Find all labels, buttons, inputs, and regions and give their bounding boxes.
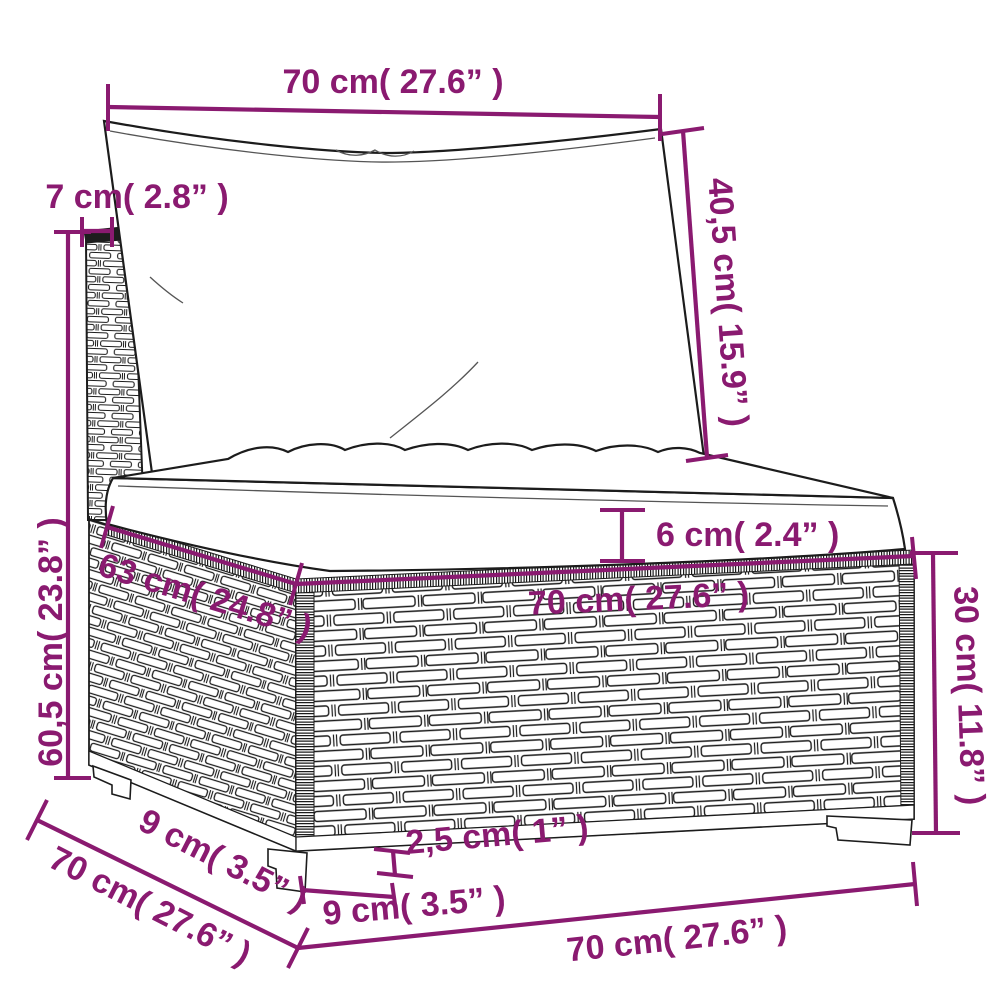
dim-base-height: 30 cm( 11.8” ) xyxy=(910,553,992,833)
dim-back-width-label: 70 cm( 27.6” ) xyxy=(282,63,503,101)
product-dimension-diagram: 70 cm( 27.6” ) 40,5 cm( 15.9” ) 7 cm( 2.… xyxy=(0,0,1000,1000)
dim-foot-width: 9 cm( 3.5” ) xyxy=(300,876,507,933)
base-right-wrap xyxy=(899,556,914,820)
dim-total-height: 60,5 cm( 23.8” ) xyxy=(32,232,91,778)
dim-seat-thickness-label: 6 cm( 2.4” ) xyxy=(656,516,839,554)
dim-back-thickness-label: 7 cm( 2.8” ) xyxy=(45,178,228,216)
dim-base-height-label: 30 cm( 11.8” ) xyxy=(946,585,992,805)
diagram-canvas: 70 cm( 27.6” ) 40,5 cm( 15.9” ) 7 cm( 2.… xyxy=(0,0,1000,1000)
back-cushion xyxy=(104,121,704,473)
dim-total-height-label: 60,5 cm( 23.8” ) xyxy=(32,517,70,766)
dim-back-height-label: 40,5 cm( 15.9” ) xyxy=(700,176,755,428)
dim-back-width: 70 cm( 27.6” ) xyxy=(108,63,660,141)
front-right-foot xyxy=(827,816,912,845)
dim-foot-width-label: 9 cm( 3.5” ) xyxy=(321,879,507,933)
sofa-drawing xyxy=(84,121,914,892)
